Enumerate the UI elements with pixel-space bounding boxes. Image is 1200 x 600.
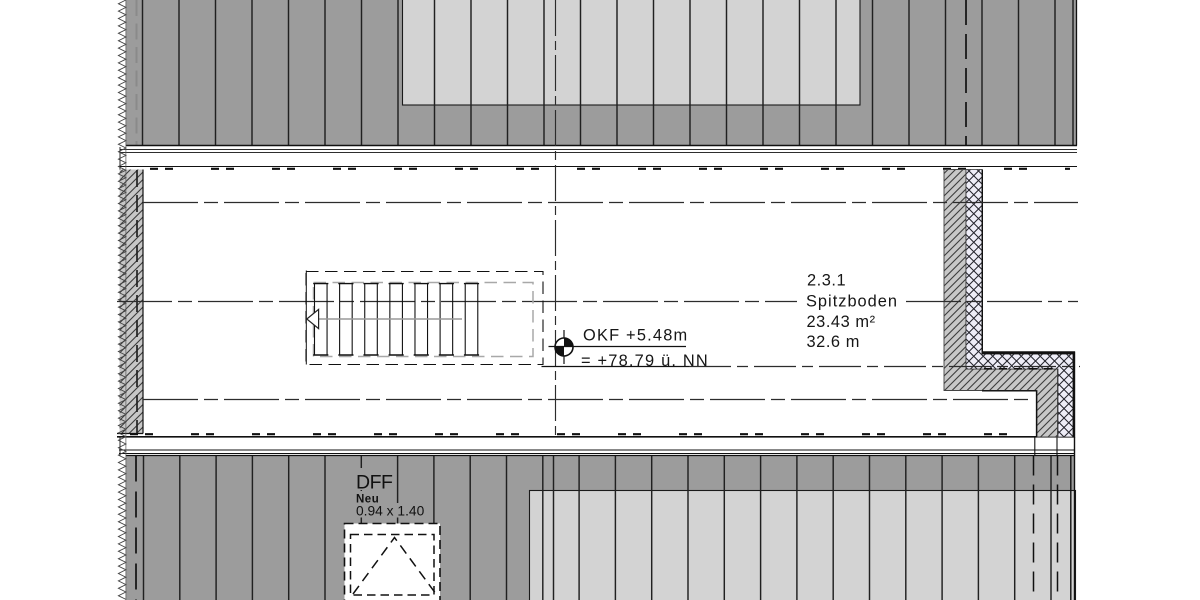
- svg-text:2.3.1: 2.3.1: [807, 272, 846, 290]
- svg-text:Spitzboden: Spitzboden: [806, 293, 898, 311]
- svg-text:23.43 m²: 23.43 m²: [807, 313, 876, 331]
- svg-text:32.6 m: 32.6 m: [807, 333, 860, 351]
- svg-text:OKF +5.48m: OKF +5.48m: [583, 327, 688, 345]
- svg-text:0.94 x 1.40: 0.94 x 1.40: [356, 504, 425, 519]
- svg-text:DFF: DFF: [356, 472, 393, 494]
- svg-text:= +78.79 ü. NN: = +78.79 ü. NN: [581, 352, 709, 370]
